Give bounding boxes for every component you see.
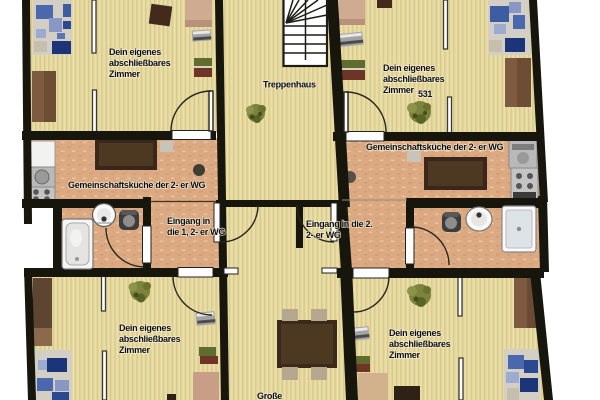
svg-text:Zimmer: Zimmer xyxy=(119,345,151,355)
svg-text:die 1, 2- er WG: die 1, 2- er WG xyxy=(167,227,225,237)
svg-text:Dein eigenes: Dein eigenes xyxy=(389,328,441,338)
svg-text:2- er WG: 2- er WG xyxy=(306,230,341,240)
svg-text:Zimmer: Zimmer xyxy=(109,69,141,79)
svg-text:Dein eigenes: Dein eigenes xyxy=(109,47,161,57)
svg-text:Zimmer: Zimmer xyxy=(383,85,415,95)
svg-text:abschließbares: abschließbares xyxy=(383,74,445,84)
svg-text:Eingang in: Eingang in xyxy=(167,216,210,226)
svg-text:abschließbares: abschließbares xyxy=(389,339,451,349)
svg-text:abschließbares: abschließbares xyxy=(109,58,171,68)
svg-text:Dein eigenes: Dein eigenes xyxy=(119,323,171,333)
svg-text:Eingang in die 2.: Eingang in die 2. xyxy=(306,219,372,229)
svg-text:531: 531 xyxy=(418,89,432,99)
svg-text:abschließbares: abschließbares xyxy=(119,334,181,344)
svg-text:Dein eigenes: Dein eigenes xyxy=(383,63,435,73)
svg-text:Gemeinschaftsküche der 2- er W: Gemeinschaftsküche der 2- er WG xyxy=(68,180,206,190)
svg-text:Treppenhaus: Treppenhaus xyxy=(263,80,316,90)
svg-text:Große: Große xyxy=(257,391,282,400)
svg-text:Gemeinschaftsküche der 2- er W: Gemeinschaftsküche der 2- er WG xyxy=(366,142,504,152)
svg-text:Zimmer: Zimmer xyxy=(389,350,421,360)
